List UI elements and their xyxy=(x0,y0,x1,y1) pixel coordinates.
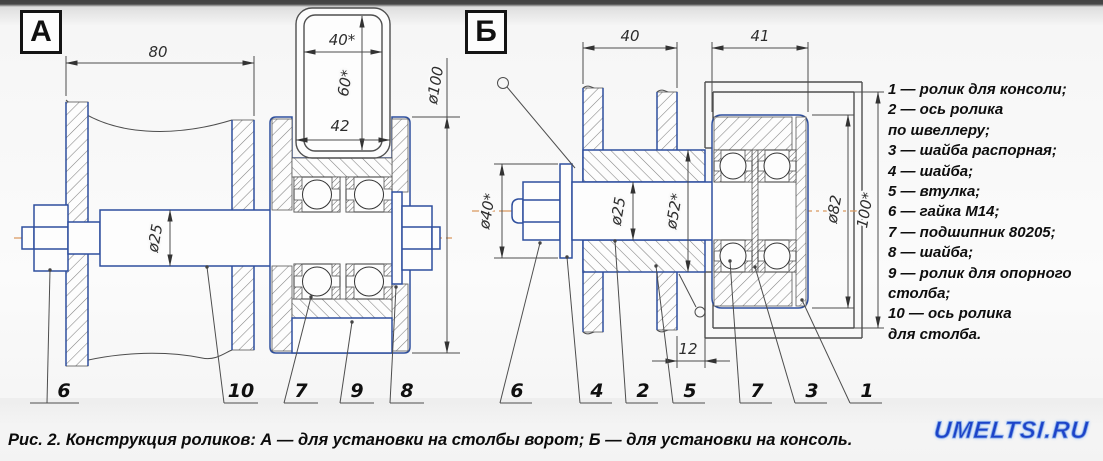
parts-list-line: для столба. xyxy=(888,325,1100,345)
callout-a-10: 10 xyxy=(228,380,254,402)
callout-a-7: 7 xyxy=(294,380,308,402)
washer-and-nut-right-a xyxy=(392,192,440,284)
svg-text:ø40*: ø40* xyxy=(475,191,499,231)
parts-list-line: 1 — ролик для консоли; xyxy=(888,80,1100,100)
figure-caption: Рис. 2. Конструкция роликов: А — для уст… xyxy=(8,431,938,450)
technical-figure: А Б xyxy=(0,0,1103,461)
site-watermark: UMELTSI.RU xyxy=(933,417,1090,445)
svg-text:41: 41 xyxy=(750,27,769,45)
svg-text:ø100: ø100 xyxy=(423,65,447,106)
parts-list-line: по швеллеру; xyxy=(888,121,1100,141)
svg-text:40: 40 xyxy=(620,27,639,45)
drawing-b-canvas: 40 41 ø40* ø25 ø52* ø82 xyxy=(460,0,890,420)
dim-post-width-a: 80 xyxy=(66,43,254,116)
parts-list-line: 5 — втулка; xyxy=(888,182,1100,202)
parts-list-line: 6 — гайка М14; xyxy=(888,202,1100,222)
svg-text:42: 42 xyxy=(330,117,349,135)
callout-a-8: 8 xyxy=(400,380,413,402)
drawing-a-canvas: 80 40* 60* 42 ø25 ø100 xyxy=(0,0,460,420)
parts-list-line: 3 — шайба распорная; xyxy=(888,141,1100,161)
svg-text:40*: 40* xyxy=(329,31,356,49)
dim-roller-width-b: 41 xyxy=(712,27,808,112)
svg-text:100*: 100* xyxy=(853,190,877,229)
callout-b-3: 3 xyxy=(805,380,818,402)
callout-b-5: 5 xyxy=(683,380,696,402)
callout-a-6: 6 xyxy=(57,380,70,402)
parts-list-line: 10 — ось ролика xyxy=(888,304,1100,324)
callout-b-4: 4 xyxy=(589,380,603,402)
parts-list-line: 7 — подшипник 80205; xyxy=(888,223,1100,243)
parts-list-line: 2 — ось ролика xyxy=(888,100,1100,120)
parts-list-line: 8 — шайба; xyxy=(888,243,1100,263)
svg-text:80: 80 xyxy=(148,43,167,61)
weld-mark-top xyxy=(498,78,576,169)
dim-post-depth-b: 40 xyxy=(583,27,677,88)
callout-b-1: 1 xyxy=(860,380,873,402)
callout-b-2: 2 xyxy=(636,380,649,402)
dim-channel-opening-b: 100* xyxy=(806,92,884,328)
weld-mark-bottom xyxy=(679,274,705,317)
parts-list: 1 — ролик для консоли; 2 — ось ролика по… xyxy=(888,80,1100,345)
parts-list-line: 9 — ролик для опорного xyxy=(888,264,1100,284)
parts-list-line: столба; xyxy=(888,284,1100,304)
svg-text:ø82: ø82 xyxy=(823,194,846,226)
svg-text:12: 12 xyxy=(678,340,697,358)
parts-list-line: 4 — шайба; xyxy=(888,162,1100,182)
callout-b-7: 7 xyxy=(750,380,764,402)
callout-a-9: 9 xyxy=(350,380,363,402)
callout-b-6: 6 xyxy=(510,380,523,402)
roller-for-console-b xyxy=(712,115,808,308)
